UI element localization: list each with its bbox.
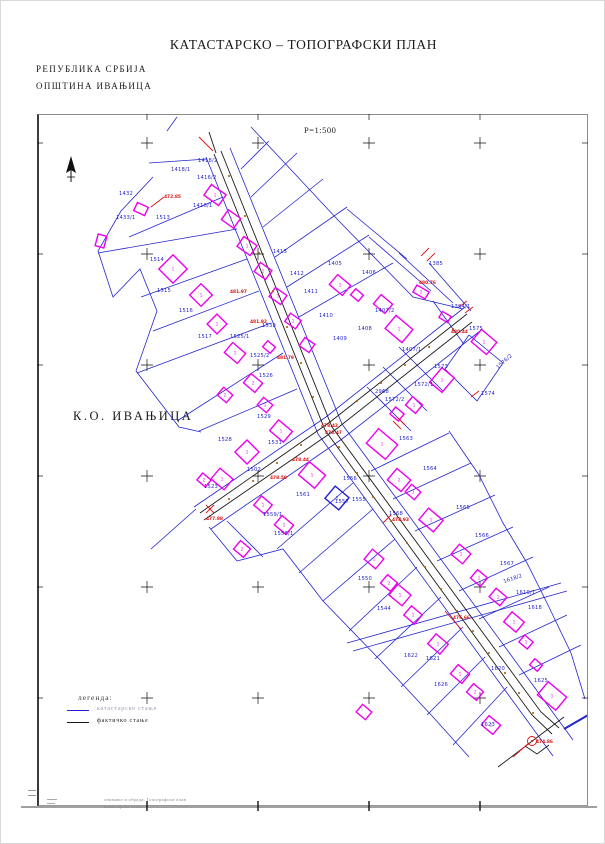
road-line — [498, 717, 564, 767]
elevation-value: 478.50 — [270, 475, 287, 481]
cadastral-lines — [98, 117, 602, 757]
parcel-number: 1618 — [528, 605, 542, 611]
elevation-value: 481.97 — [230, 289, 247, 295]
building-outline — [439, 311, 451, 322]
elevation-value: 481.79 — [277, 355, 294, 361]
grid-cross — [141, 137, 153, 149]
elevation-value: 478.44 — [292, 457, 309, 463]
margin-mark — [28, 795, 36, 796]
building-number: 2 — [420, 290, 423, 295]
parcel-number: 1573 — [434, 364, 448, 370]
building-number: 1 — [246, 244, 249, 249]
parcel-number: 1626 — [434, 682, 448, 688]
building-number: 1 — [399, 593, 402, 598]
elevation-value: 478.47 — [325, 430, 342, 436]
building-number: 1 — [497, 595, 500, 600]
building-number: 1 — [412, 613, 415, 618]
legend-label-actual: фактичко стање — [97, 718, 149, 724]
cadastral-boundary — [98, 177, 201, 432]
elevation-value: 476.66 — [453, 615, 470, 621]
parcel-number: 2968 — [375, 389, 389, 395]
survey-dot — [252, 480, 254, 482]
survey-dot — [258, 252, 260, 254]
cadastral-boundary — [137, 323, 271, 373]
building-number: 1 — [264, 403, 267, 408]
building-number: 2 — [203, 478, 206, 483]
parcel-number: 1385 — [429, 261, 443, 267]
grid-cross — [474, 359, 486, 371]
building-number: 3 — [412, 490, 415, 495]
building-number: 1 — [283, 523, 286, 528]
red-tick — [427, 253, 435, 261]
survey-dot — [404, 364, 406, 366]
parcel-number: 1576/2 — [495, 353, 513, 370]
map-content: 1111211111112111111212111121123111121111… — [66, 117, 602, 767]
parcel-number: 1433/1 — [116, 215, 135, 221]
cadastral-line-swatch — [67, 710, 89, 711]
margin-mark — [47, 799, 57, 800]
cadastral-boundary — [519, 645, 581, 675]
parcel-number: 1523 — [204, 484, 218, 490]
parcel-number: 1575 — [469, 326, 483, 332]
building-number: 1 — [280, 429, 283, 434]
building-number: 1 — [234, 351, 237, 356]
building-outline — [134, 202, 149, 215]
building-number: 1 — [200, 293, 203, 298]
building-outline — [263, 341, 276, 354]
grid-cross — [474, 248, 486, 260]
parcel-number: 1516 — [179, 308, 193, 314]
building-number: 1 — [246, 450, 249, 455]
parcel-number: 1557 — [335, 499, 349, 505]
grid-cross — [363, 248, 375, 260]
plan-page: КАТАСТАРСКО – ТОПОГРАФСКИ ПЛАН РЕПУБЛИКА… — [0, 0, 605, 844]
parcel-number: 1561 — [296, 492, 310, 498]
cadastral-boundary — [323, 539, 395, 601]
parcel-number: 1528 — [218, 437, 232, 443]
parcel-labels: 1418/11418/21416/21416/114321433/1151315… — [116, 158, 548, 728]
elevation-value: 477.98 — [206, 516, 223, 522]
building-number: 1 — [172, 267, 175, 272]
survey-dot — [440, 588, 442, 590]
grid-cross — [141, 470, 153, 482]
parcel-number: 1525/1 — [230, 334, 249, 340]
legend: легенда: катастарско стање фактичко стањ… — [61, 693, 241, 726]
parcel-number: 1572/1 — [414, 382, 433, 388]
cadastral-boundary — [199, 389, 297, 431]
parcel-number: 1622 — [404, 653, 418, 659]
cadastral-boundary — [277, 483, 353, 549]
building-number: 1 — [373, 557, 376, 562]
parcel-number: 1513 — [156, 215, 170, 221]
parcel-number: 1413 — [273, 249, 287, 255]
grid-cross — [363, 692, 375, 704]
parcel-number: 1559/1 — [263, 512, 282, 518]
building-number: 1 — [221, 477, 224, 482]
elevation-value: 480.44 — [451, 329, 468, 335]
survey-dot — [300, 444, 302, 446]
legend-row-cadastral: катастарско стање — [61, 706, 241, 714]
parcel-number: 1565 — [456, 505, 470, 511]
parcel-number: 1407/2 — [375, 308, 394, 314]
parcel-number: 1502 — [247, 467, 261, 473]
parcel-number: 1574 — [481, 391, 496, 397]
grid-cross — [474, 137, 486, 149]
building-number: 1 — [216, 322, 219, 327]
parcel-number: 1566 — [475, 533, 489, 539]
parcel-number: 1416/2 — [197, 175, 216, 181]
parcel-number: 1408 — [358, 326, 372, 332]
footer-note-2: катастарско стање — [104, 804, 144, 809]
survey-dot — [372, 496, 374, 498]
survey-dot — [272, 290, 274, 292]
legend-label-cadastral: катастарско стање — [97, 706, 157, 712]
parcel-number: 1517 — [198, 334, 212, 340]
parcel-number: 1418/2 — [198, 158, 217, 164]
road-line — [525, 745, 549, 754]
red-point-center — [531, 740, 533, 742]
cadastral-boundary — [399, 253, 453, 303]
cadastral-boundary — [151, 509, 196, 549]
road-line — [209, 132, 216, 153]
survey-dot — [456, 610, 458, 612]
survey-dot — [472, 630, 474, 632]
parcel-number: 1411 — [304, 289, 318, 295]
footer-note-1: снимање и обрада: Топографски план — [104, 797, 186, 802]
building-number: 1 — [277, 294, 280, 299]
building-number: 2 — [241, 547, 244, 552]
red-tick — [151, 197, 164, 207]
cadastral-boundary — [263, 179, 323, 227]
cadastral-boundary — [299, 509, 373, 573]
parcel-number: 1416/1 — [193, 203, 212, 209]
survey-dot — [276, 462, 278, 464]
survey-dot — [532, 712, 534, 714]
building-number: 1 — [214, 193, 217, 198]
survey-dot — [228, 498, 230, 500]
survey-dot — [286, 326, 288, 328]
survey-dot — [428, 346, 430, 348]
building-number: 1 — [459, 672, 462, 677]
red-tick — [421, 248, 429, 256]
actual-line-swatch — [67, 722, 89, 723]
parcel-number: 1525/2 — [250, 353, 269, 359]
cadastral-boundary — [209, 527, 237, 561]
building-number: 1 — [551, 694, 554, 699]
cadastral-boundary — [564, 707, 602, 729]
building-number: 2 — [388, 581, 391, 586]
elevation-value: 472.85 — [164, 194, 181, 200]
cadastral-boundary — [241, 141, 269, 169]
parcel-number: 1526 — [259, 373, 273, 379]
legend-heading: легенда: — [78, 693, 241, 702]
cadastral-boundary — [227, 521, 263, 557]
building-number: 1 — [478, 576, 481, 581]
building-number: 1 — [292, 319, 295, 324]
grid-cross — [141, 581, 153, 593]
building-number: 1 — [441, 378, 444, 383]
grid-cross — [363, 581, 375, 593]
survey-dot — [338, 446, 340, 448]
parcel-number: 1550 — [358, 576, 372, 582]
survey-dot — [312, 396, 314, 398]
building-number: 1 — [525, 640, 528, 645]
actual-state-lines — [200, 132, 564, 767]
building-number: 1 — [230, 217, 233, 222]
parcel-number: 1406 — [362, 270, 376, 276]
parcel-number: 1384/1 — [451, 304, 470, 310]
survey-dot — [356, 400, 358, 402]
survey-dot — [300, 362, 302, 364]
parcel-number: 1623 — [481, 722, 495, 728]
survey-dot — [406, 542, 408, 544]
cadastral-boundary — [353, 591, 567, 651]
grid-cross — [252, 692, 264, 704]
parcel-number: 1405 — [328, 261, 342, 267]
grid-cross — [474, 470, 486, 482]
margin-mark — [47, 803, 55, 804]
elevation-value: 474.86 — [536, 739, 553, 745]
survey-dot — [488, 652, 490, 654]
cadastral-boundary — [98, 229, 237, 253]
parcel-number: 1514 — [150, 257, 165, 263]
parcel-number: 1412 — [290, 271, 304, 277]
survey-dot — [380, 382, 382, 384]
building-number: 1 — [437, 642, 440, 647]
north-arrow-icon — [66, 156, 76, 182]
red-tick — [513, 743, 529, 757]
cadastral-boundary — [251, 153, 297, 197]
building-number: 2 — [252, 381, 255, 386]
building-number: 1 — [413, 403, 416, 408]
elevation-value: 481.92 — [250, 319, 267, 325]
parcel-number: 1555 — [352, 497, 366, 503]
cadastral-boundary — [449, 431, 585, 699]
building-number: 1 — [460, 552, 463, 557]
parcel-number: 1620 — [491, 666, 505, 672]
survey-dot — [244, 215, 246, 217]
grid-cross — [363, 359, 375, 371]
elevation-value: 478.93 — [392, 517, 409, 523]
parcel-number: 1529 — [257, 414, 271, 420]
parcel-number: 1572/2 — [385, 397, 404, 403]
building-number: 1 — [339, 283, 342, 288]
survey-dot — [518, 692, 520, 694]
grid-cross — [252, 581, 264, 593]
building-number: 2 — [474, 690, 477, 695]
parcel-number: 1567 — [500, 561, 514, 567]
parcel-number: 1568 — [389, 511, 403, 517]
cadastral-boundary — [153, 291, 259, 331]
grid-cross — [363, 137, 375, 149]
elevation-value: 480.76 — [419, 280, 436, 286]
parcel-number: 1621 — [426, 656, 440, 662]
parcel-number: 1409 — [333, 336, 347, 342]
survey-dot — [228, 175, 230, 177]
margin-mark — [28, 790, 36, 791]
parcel-number: 1515 — [157, 288, 171, 294]
cadastral-boundary — [459, 557, 533, 591]
legend-row-actual: фактичко стање — [61, 718, 241, 726]
parcel-number: 1618/2 — [503, 573, 523, 585]
building-number: 1 — [262, 503, 265, 508]
survey-dot — [504, 672, 506, 674]
building-outline — [390, 407, 404, 421]
building-number: 1 — [262, 269, 265, 274]
red-tick — [393, 421, 401, 429]
building-outline — [356, 704, 372, 719]
parcel-number: 1619/1 — [516, 590, 535, 596]
building-number: 1 — [398, 327, 401, 332]
elevation-value: 478.42 — [321, 423, 338, 429]
building-number: 1 — [483, 340, 486, 345]
building-number: 2 — [398, 478, 401, 483]
parcel-number: 1564 — [423, 466, 438, 472]
parcel-number: 1531 — [268, 440, 282, 446]
parcel-number: 1544 — [377, 606, 392, 612]
survey-dot — [424, 566, 426, 568]
parcel-number: 1410 — [319, 313, 333, 319]
parcel-number: 1563 — [399, 436, 413, 442]
building-number: 1 — [311, 473, 314, 478]
cadastral-boundary — [383, 367, 427, 411]
parcel-number: 1432 — [119, 191, 133, 197]
building-number: 2 — [224, 393, 227, 398]
parcel-number: 1407/1 — [402, 347, 421, 353]
red-tick — [471, 391, 479, 397]
building-number: 1 — [381, 442, 384, 447]
red-marks — [151, 137, 537, 757]
parcel-number: 1558/1 — [274, 531, 293, 537]
survey-dot — [356, 472, 358, 474]
cadastral-boundary — [167, 117, 177, 131]
parcel-number: 1625 — [534, 678, 548, 684]
parcel-number: 1418/1 — [171, 167, 190, 173]
parcel-number: 1556 — [343, 476, 357, 482]
cadastral-boundary — [347, 209, 407, 259]
building-outline — [351, 289, 364, 302]
building-number: 1 — [430, 518, 433, 523]
building-number: 1 — [513, 620, 516, 625]
